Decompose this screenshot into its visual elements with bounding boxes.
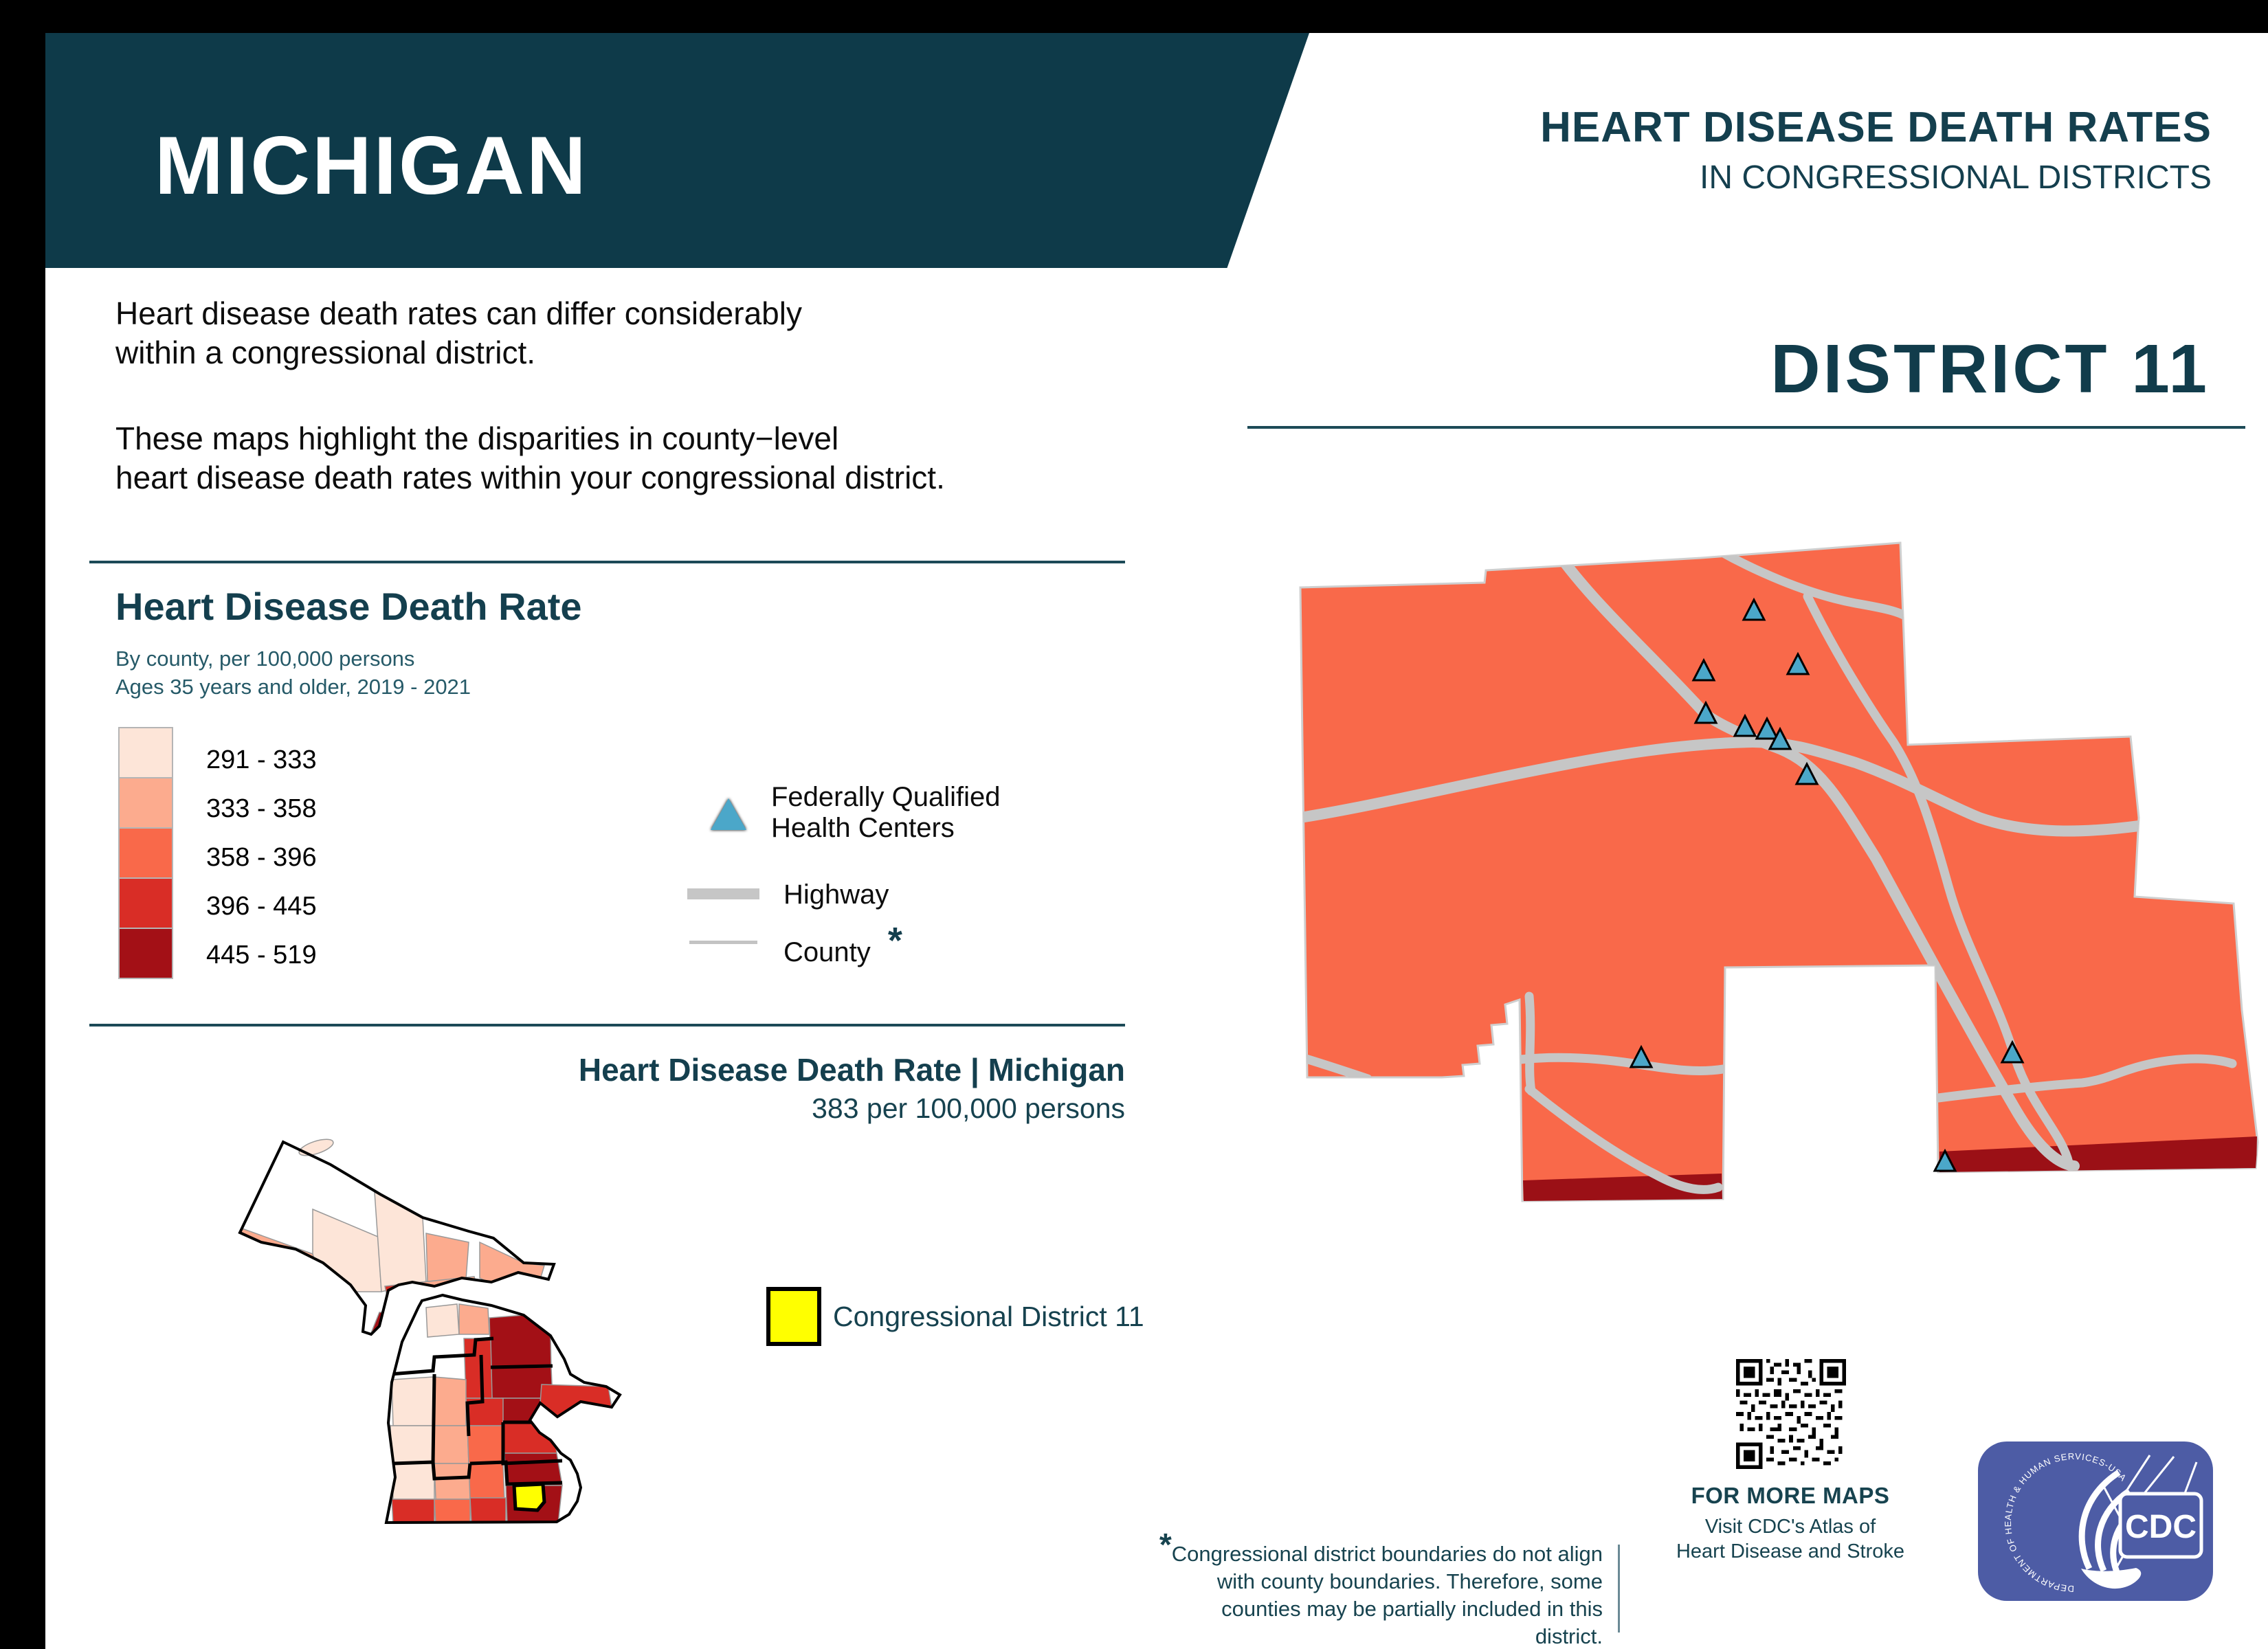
report-title-line2: IN CONGRESSIONAL DISTRICTS (1540, 159, 2212, 197)
district11-highlight (514, 1484, 544, 1510)
legend-class-label-2: 333 - 358 (206, 794, 317, 824)
report-title-line1: HEART DISEASE DEATH RATES (1540, 103, 2212, 152)
legend-class-label-5: 445 - 519 (206, 941, 317, 970)
district11-area (1300, 543, 2258, 1201)
legend-class-label-3: 358 - 396 (206, 843, 317, 873)
district11-legend-swatch (766, 1287, 821, 1346)
intro-paragraph-1: Heart disease death rates can differ con… (115, 294, 945, 372)
fqhc-triangle-icon (711, 798, 746, 830)
legend-class-label-1: 291 - 333 (206, 745, 317, 775)
legend-swatch-3 (118, 827, 173, 879)
left-black-bar (0, 0, 45, 1649)
legend-title: Heart Disease Death Rate (115, 584, 582, 629)
fqhc-label: Federally Qualified Health Centers (771, 782, 1001, 844)
intro-paragraph-2: These maps highlight the disparities in … (115, 419, 945, 497)
county-line-icon (689, 941, 757, 944)
county-footnote-asterisk: * (888, 920, 902, 961)
legend-swatch-2 (118, 777, 173, 829)
infographic-page: MICHIGAN HEART DISEASE DEATH RATES IN CO… (0, 0, 2268, 1649)
intro-text: Heart disease death rates can differ con… (115, 294, 945, 544)
county-label: County * (783, 928, 893, 970)
top-black-bar (0, 0, 2268, 33)
more-maps-subtitle: Visit CDC's Atlas of Heart Disease and S… (1643, 1514, 1938, 1564)
report-title: HEART DISEASE DEATH RATES IN CONGRESSION… (1540, 103, 2212, 197)
michigan-state-map (186, 1079, 708, 1601)
cdc-logo-text: CDC (2125, 1509, 2197, 1545)
qr-code (1736, 1359, 1846, 1469)
legend-color-ramp (118, 728, 173, 979)
legend-bottom-divider (89, 1024, 1125, 1027)
district-title: DISTRICT 11 (1770, 330, 2210, 409)
highway-line-icon (687, 888, 759, 899)
footnote-asterisk: * (1159, 1527, 1172, 1562)
legend-class-label-4: 396 - 445 (206, 892, 317, 921)
district11-map (1271, 515, 2268, 1285)
upper-peninsula-counties (227, 1192, 544, 1336)
more-maps-title: FOR MORE MAPS (1643, 1483, 1938, 1509)
footer-divider (1618, 1545, 1620, 1633)
legend-subtitle: By county, per 100,000 persons Ages 35 y… (115, 644, 471, 701)
district-title-divider (1247, 426, 2245, 429)
map-footnote: *Congressional district boundaries do no… (1149, 1538, 1603, 1649)
more-maps-callout: FOR MORE MAPS Visit CDC's Atlas of Heart… (1643, 1483, 1938, 1564)
legend-swatch-1 (118, 727, 173, 778)
legend-swatch-5 (118, 928, 173, 979)
isle-royale (297, 1136, 335, 1158)
legend-swatch-4 (118, 877, 173, 929)
highway-label: Highway (783, 879, 889, 910)
legend-top-divider (89, 561, 1125, 563)
state-name-title: MICHIGAN (155, 118, 588, 213)
hhs-cdc-logo: DEPARTMENT OF HEALTH & HUMAN SERVICES-US… (1978, 1442, 2213, 1601)
district11-legend-label: Congressional District 11 (833, 1301, 1144, 1333)
